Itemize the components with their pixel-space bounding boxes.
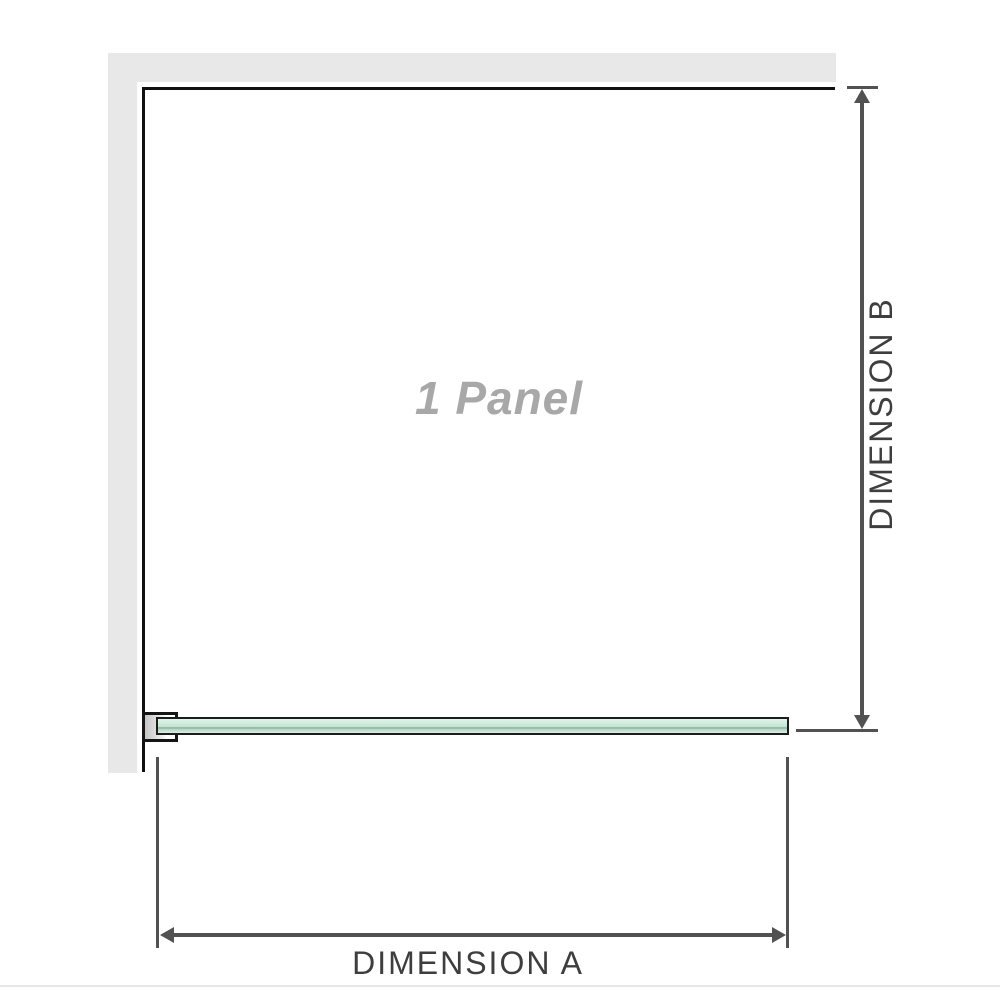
arrow-right-icon bbox=[772, 927, 786, 943]
bottom-separator-line bbox=[0, 985, 1000, 987]
panel-count-label: 1 Panel bbox=[349, 370, 649, 426]
arrow-left-icon bbox=[160, 927, 174, 943]
wall-top-segment bbox=[108, 53, 836, 82]
dimension-a-extension-right bbox=[786, 757, 789, 948]
dimension-b-tick-bottom bbox=[796, 729, 878, 732]
dimension-b-line bbox=[860, 100, 864, 718]
dimension-a-line bbox=[171, 933, 774, 937]
diagram-canvas: 1 Panel DIMENSION B DIMENSION A bbox=[0, 0, 1000, 1000]
glass-panel-plan-view bbox=[156, 717, 789, 735]
dimension-a-label: DIMENSION A bbox=[338, 946, 598, 980]
arrow-up-icon bbox=[854, 89, 870, 103]
dimension-a-extension-left bbox=[156, 757, 159, 948]
dimension-b-label: DIMENSION B bbox=[865, 284, 897, 544]
wall-left-segment bbox=[108, 53, 137, 773]
arrow-down-icon bbox=[854, 715, 870, 729]
panel-outline bbox=[142, 87, 835, 772]
